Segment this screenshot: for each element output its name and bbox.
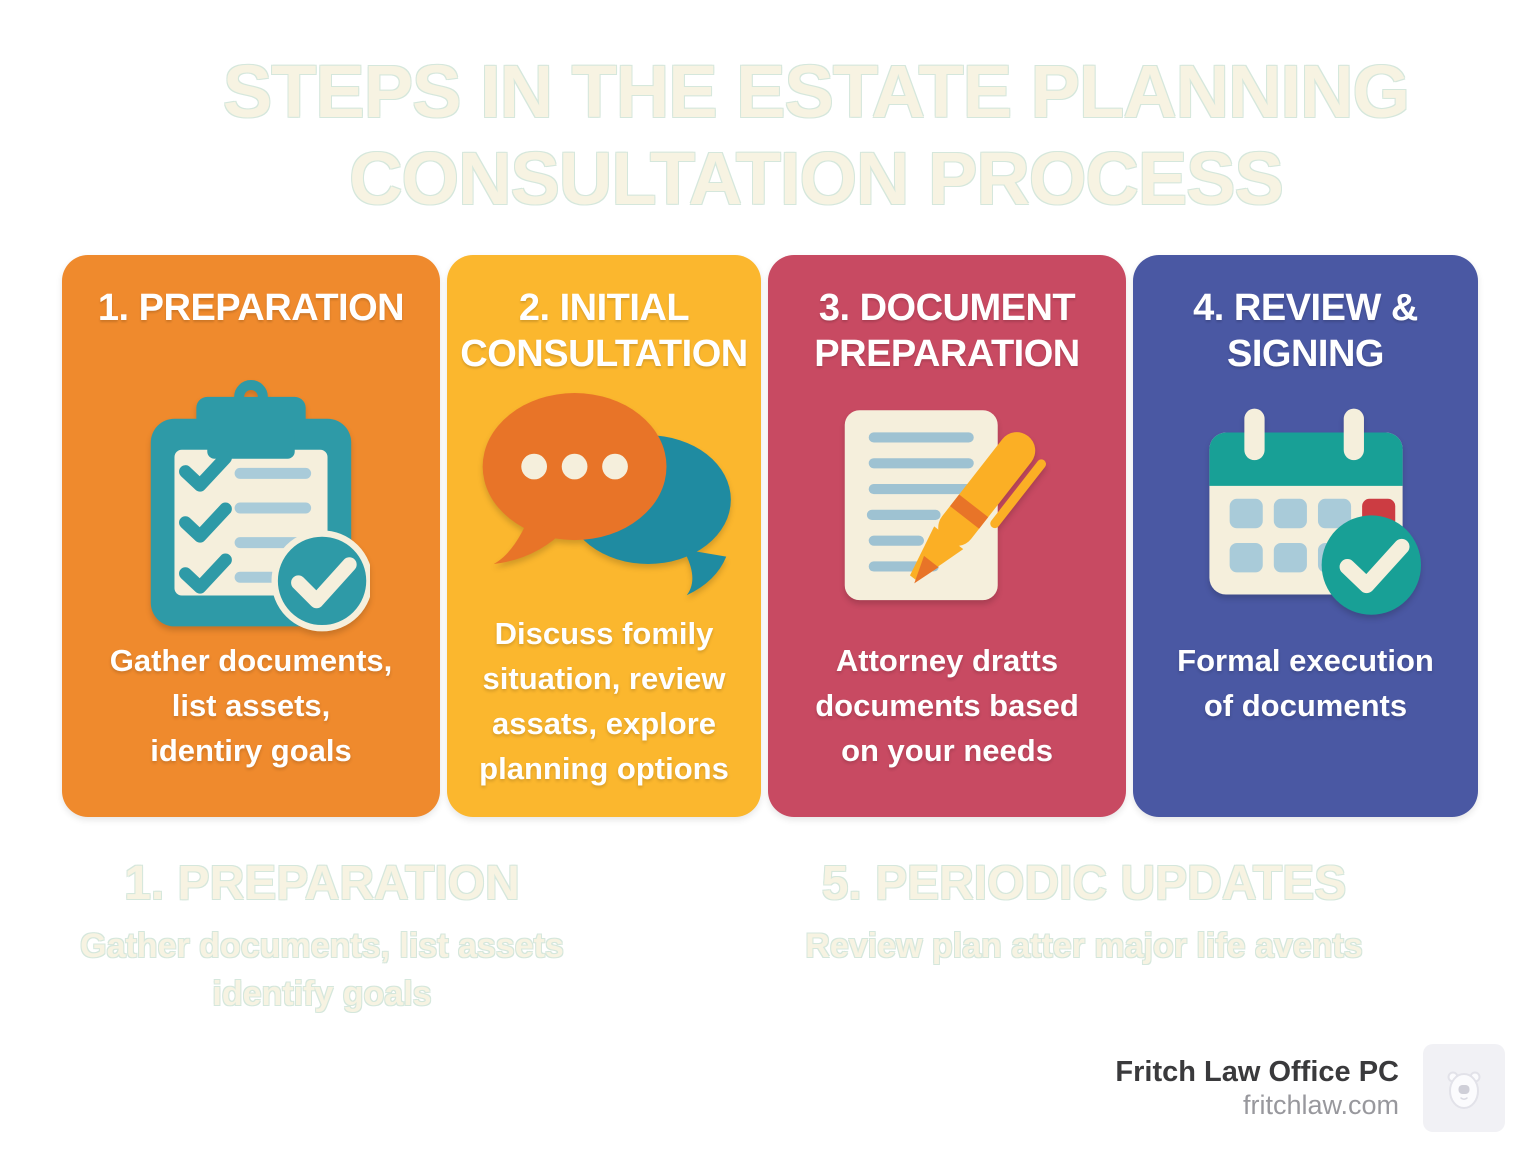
step-description: Gather documents, list assets, identiry …	[110, 638, 393, 773]
step-card-preparation: 1. PREPARATION	[62, 255, 440, 817]
ghost-note-heading: 1. PREPARATION	[42, 856, 602, 912]
step-title: 2. INITIAL CONSULTATION	[460, 285, 747, 377]
step-icon-area	[1191, 385, 1421, 630]
step-title: 3. DOCUMENT PREPARATION	[814, 285, 1079, 385]
step-card-review-signing: 4. REVIEW & SIGNING	[1133, 255, 1478, 817]
step-description: Discuss fomily situation, review assats,…	[479, 611, 729, 791]
step-icon-area	[132, 385, 370, 630]
step-icon-area	[475, 377, 733, 603]
company-name: Fritch Law Office PC	[1115, 1055, 1399, 1089]
logo-tile	[1423, 1044, 1505, 1132]
clipboard-checklist-icon	[132, 375, 370, 641]
ghost-note-body: Gather documents, list assets identify g…	[42, 922, 602, 1018]
step-title: 4. REVIEW & SIGNING	[1193, 285, 1418, 385]
steps-row: 1. PREPARATION	[62, 255, 1478, 817]
footer-brand: Fritch Law Office PC fritchlaw.com	[1115, 1044, 1505, 1132]
ghost-note-periodic-updates: 5. PERIODIC UPDATES Review plan atter ma…	[754, 856, 1414, 970]
bear-icon	[1444, 1065, 1484, 1111]
ghost-note-preparation: 1. PREPARATION Gather documents, list as…	[42, 856, 602, 1018]
calendar-check-icon	[1191, 401, 1421, 615]
document-pen-icon	[830, 399, 1065, 616]
ghost-note-body: Review plan atter major life avents	[754, 922, 1414, 970]
step-card-initial-consultation: 2. INITIAL CONSULTATION Discuss fomily s…	[447, 255, 761, 817]
website-url: fritchlaw.com	[1115, 1089, 1399, 1121]
page-title: STEPS IN THE ESTATE PLANNING CONSULTATIO…	[96, 48, 1536, 222]
chat-bubbles-icon	[475, 382, 733, 598]
step-description: Formal execution of documents	[1177, 638, 1434, 728]
ghost-note-heading: 5. PERIODIC UPDATES	[754, 856, 1414, 912]
step-card-document-preparation: 3. DOCUMENT PREPARATION	[768, 255, 1126, 817]
step-description: Attorney dratts documents based on your …	[815, 638, 1079, 773]
step-icon-area	[830, 385, 1065, 630]
step-title: 1. PREPARATION	[98, 285, 404, 385]
brand-text: Fritch Law Office PC fritchlaw.com	[1115, 1055, 1399, 1121]
